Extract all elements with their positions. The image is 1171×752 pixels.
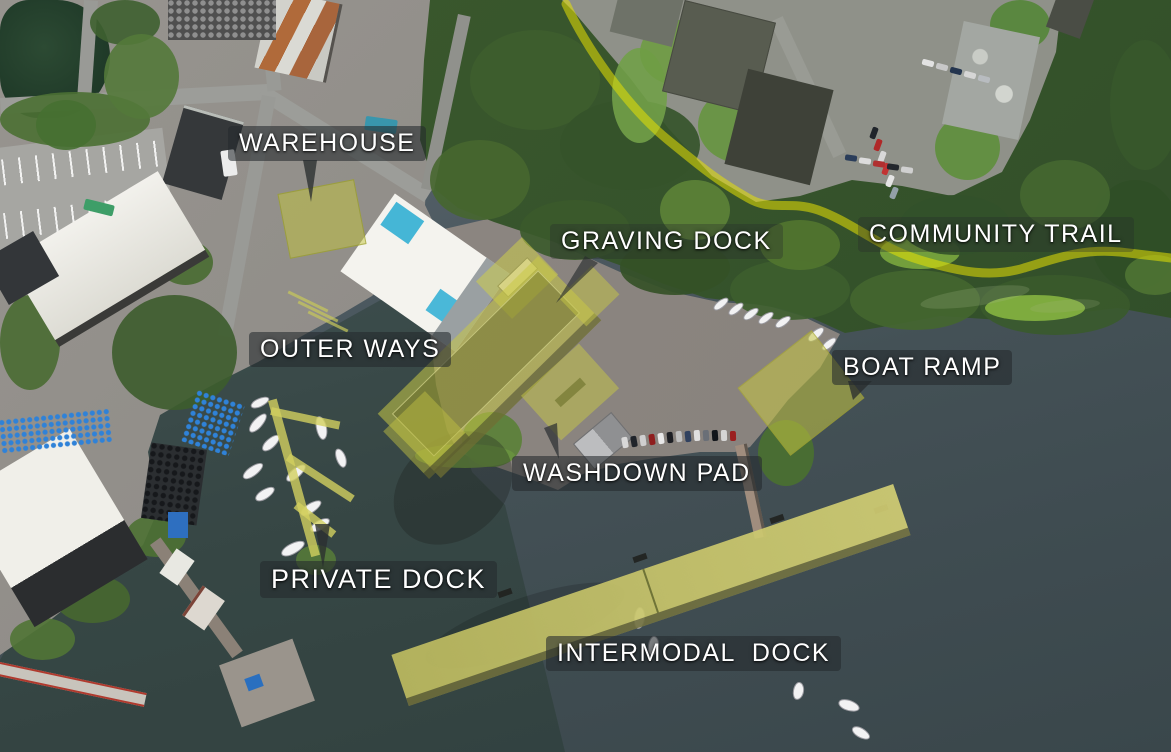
aerial-site-map: WAREHOUSE GRAVING DOCK COMMUNITY TRAIL O… [0, 0, 1171, 752]
label-warehouse: WAREHOUSE [228, 126, 426, 161]
label-graving-dock: GRAVING DOCK [550, 224, 783, 259]
label-intermodal-dock: INTERMODAL DOCK [546, 636, 841, 671]
label-boat-ramp: BOAT RAMP [832, 350, 1012, 385]
label-outer-ways: OUTER WAYS [249, 332, 451, 367]
label-community-trail: COMMUNITY TRAIL [858, 217, 1134, 252]
label-washdown-pad: WASHDOWN PAD [512, 456, 762, 491]
label-private-dock: PRIVATE DOCK [260, 561, 497, 598]
